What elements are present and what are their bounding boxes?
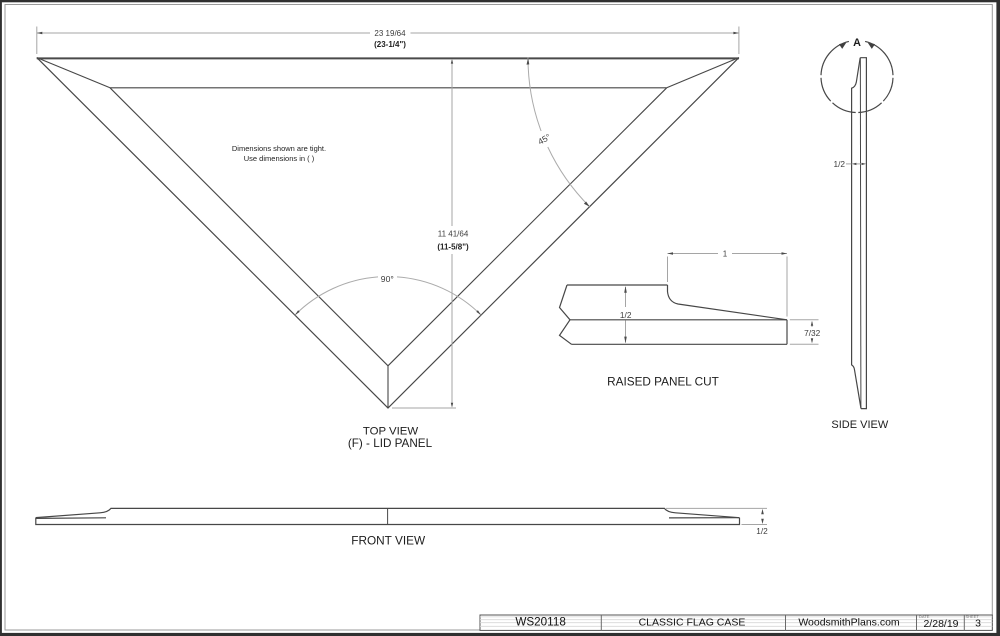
svg-text:90°: 90° xyxy=(381,274,394,284)
svg-text:2/28/19: 2/28/19 xyxy=(923,618,958,630)
svg-text:1: 1 xyxy=(723,250,728,259)
svg-text:1/2: 1/2 xyxy=(834,159,846,169)
svg-text:1/2: 1/2 xyxy=(620,310,632,320)
svg-text:WoodsmithPlans.com: WoodsmithPlans.com xyxy=(798,616,900,628)
svg-text:7/32: 7/32 xyxy=(804,328,821,338)
svg-text:Use dimensions in ( ): Use dimensions in ( ) xyxy=(244,154,315,163)
svg-text:1/2: 1/2 xyxy=(756,526,768,536)
svg-text:FRONT VIEW: FRONT VIEW xyxy=(351,533,426,547)
svg-text:WS20118: WS20118 xyxy=(515,616,565,629)
svg-text:SIDE VIEW: SIDE VIEW xyxy=(831,419,888,431)
svg-text:(11-5/8"): (11-5/8") xyxy=(437,243,469,252)
svg-text:TOP VIEW: TOP VIEW xyxy=(363,426,419,438)
svg-text:Dimensions shown are tight.: Dimensions shown are tight. xyxy=(232,144,326,153)
svg-text:11 41/64: 11 41/64 xyxy=(438,230,469,239)
svg-text:3: 3 xyxy=(975,618,981,630)
svg-text:(F) - LID PANEL: (F) - LID PANEL xyxy=(348,437,433,450)
svg-text:A: A xyxy=(853,37,861,49)
svg-text:RAISED PANEL CUT: RAISED PANEL CUT xyxy=(607,376,719,389)
svg-text:(23-1/4"): (23-1/4") xyxy=(374,40,406,49)
svg-text:23 19/64: 23 19/64 xyxy=(374,29,406,38)
svg-text:CLASSIC FLAG CASE: CLASSIC FLAG CASE xyxy=(639,616,746,628)
